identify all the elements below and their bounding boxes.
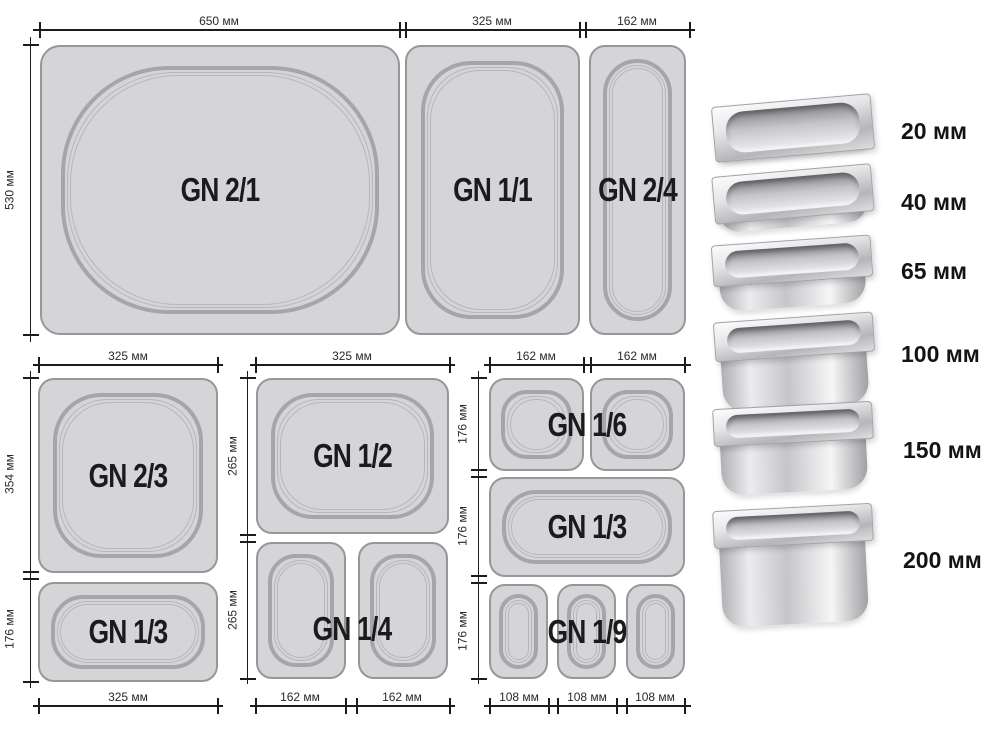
dim-tick — [255, 698, 257, 714]
dim-tick — [217, 698, 219, 714]
dim-tick — [449, 357, 451, 373]
dim-line — [484, 364, 691, 366]
depth-label-40mm: 40 мм — [901, 189, 967, 216]
pan-opening — [726, 319, 861, 353]
dim-tick — [255, 357, 257, 373]
dim-label-108mm: 108 мм — [635, 691, 675, 704]
pan-gn-1-3-right: GN 1/3 — [489, 477, 685, 577]
pan-opening — [724, 101, 861, 154]
pan-gn-2-1: GN 2/1 — [40, 45, 400, 335]
pan-gn-2-3: GN 2/3 — [38, 378, 218, 573]
dim-label-162mm: 162 мм — [382, 691, 422, 704]
pan-well — [51, 595, 205, 669]
pan-opening — [725, 511, 860, 541]
dim-tick — [616, 698, 618, 714]
pan-well — [370, 554, 436, 667]
dim-label-176mm: 176 мм — [4, 609, 17, 649]
dim-label-265mm: 265 мм — [227, 590, 240, 630]
pan-well — [268, 554, 334, 667]
dim-line — [30, 371, 32, 688]
pan-well — [603, 59, 672, 321]
dim-label-162mm: 162 мм — [280, 691, 320, 704]
dim-label-325mm: 325 мм — [332, 350, 372, 363]
dim-label-162mm: 162 мм — [617, 350, 657, 363]
dim-line — [478, 371, 480, 684]
dim-line — [484, 705, 691, 707]
pan-photo-200mm — [713, 507, 875, 624]
dim-tick — [23, 44, 39, 46]
dim-tick — [548, 698, 550, 714]
depth-label-150mm: 150 мм — [903, 437, 982, 464]
pan-well — [499, 594, 538, 669]
dim-tick — [405, 22, 407, 38]
dim-label-176mm: 176 мм — [457, 404, 470, 444]
dim-tick — [557, 698, 559, 714]
dim-label-354mm: 354 мм — [4, 454, 17, 494]
pan-photo-20mm — [713, 100, 875, 154]
gastronorm-sizes-diagram: 650 мм 325 мм 162 мм 530 мм 325 мм 354 м… — [0, 0, 998, 734]
depth-label-200mm: 200 мм — [903, 547, 982, 574]
dim-line — [33, 29, 695, 31]
dim-tick — [626, 698, 628, 714]
dim-tick — [449, 698, 451, 714]
dim-tick — [345, 698, 347, 714]
pan-photo-150mm — [713, 405, 875, 492]
pan-well — [271, 393, 434, 519]
depth-label-100mm: 100 мм — [901, 341, 980, 368]
pan-well — [636, 594, 675, 669]
dim-line — [250, 364, 455, 366]
dim-label-325mm: 325 мм — [108, 691, 148, 704]
dim-tick — [471, 377, 487, 379]
dim-tick — [356, 698, 358, 714]
dim-tick — [38, 698, 40, 714]
pan-gn-1-4-a — [256, 542, 346, 679]
pan-photo-65mm — [712, 240, 874, 307]
pan-gn-1-6-a — [489, 378, 584, 471]
dim-label-325mm: 325 мм — [472, 15, 512, 28]
dim-tick — [684, 698, 686, 714]
dim-line — [247, 371, 249, 684]
pan-gn-1-3-left: GN 1/3 — [38, 582, 218, 682]
pan-opening — [724, 242, 860, 278]
dim-tick — [23, 681, 39, 683]
dim-tick — [471, 469, 487, 471]
pan-well — [53, 393, 203, 558]
dim-tick — [471, 582, 487, 584]
dim-tick — [217, 357, 219, 373]
pan-well — [502, 490, 672, 564]
dim-tick — [23, 571, 39, 573]
dim-label-162mm: 162 мм — [516, 350, 556, 363]
pan-gn-1-4-b — [358, 542, 448, 679]
dim-label-108mm: 108 мм — [499, 691, 539, 704]
pan-gn-1-1: GN 1/1 — [405, 45, 580, 335]
pan-gn-1-2: GN 1/2 — [256, 378, 449, 534]
dim-line — [250, 705, 455, 707]
pan-gn-1-9-c — [626, 584, 685, 679]
dim-line — [33, 705, 223, 707]
dim-label-162mm: 162 мм — [617, 15, 657, 28]
dim-line — [30, 37, 32, 342]
depth-label-65mm: 65 мм — [901, 258, 967, 285]
pan-gn-1-9-b — [557, 584, 616, 679]
dim-tick — [471, 575, 487, 577]
pan-well — [501, 390, 572, 459]
dim-tick — [399, 22, 401, 38]
dim-tick — [579, 22, 581, 38]
dim-tick — [471, 476, 487, 478]
pan-well — [602, 390, 673, 459]
dim-tick — [240, 541, 256, 543]
dim-tick — [583, 357, 585, 373]
pan-opening — [725, 409, 860, 439]
dim-label-325mm: 325 мм — [108, 350, 148, 363]
pan-opening — [725, 171, 861, 216]
dim-tick — [39, 22, 41, 38]
dim-tick — [240, 377, 256, 379]
dim-tick — [23, 334, 39, 336]
dim-tick — [471, 678, 487, 680]
pan-well — [421, 61, 564, 319]
dim-tick — [489, 698, 491, 714]
dim-tick — [23, 578, 39, 580]
dim-tick — [38, 357, 40, 373]
dim-label-108mm: 108 мм — [567, 691, 607, 704]
dim-tick — [23, 377, 39, 379]
pan-well — [567, 594, 606, 669]
dim-tick — [240, 534, 256, 536]
dim-line — [33, 364, 223, 366]
dim-tick — [590, 357, 592, 373]
dim-label-176mm: 176 мм — [457, 506, 470, 546]
pan-photo-40mm — [713, 170, 875, 227]
pan-well — [61, 66, 379, 314]
pan-gn-1-6-b — [590, 378, 685, 471]
pan-photo-100mm — [714, 317, 876, 408]
pan-rim — [711, 93, 875, 163]
pan-gn-2-4: GN 2/4 — [589, 45, 686, 335]
dim-label-530mm: 530 мм — [4, 170, 17, 210]
dim-label-265mm: 265 мм — [227, 436, 240, 476]
dim-tick — [684, 357, 686, 373]
dim-label-650mm: 650 мм — [199, 15, 239, 28]
pan-gn-1-9-a — [489, 584, 548, 679]
depth-label-20mm: 20 мм — [901, 118, 967, 145]
dim-tick — [585, 22, 587, 38]
dim-tick — [689, 22, 691, 38]
dim-tick — [240, 678, 256, 680]
dim-label-176mm: 176 мм — [457, 611, 470, 651]
dim-tick — [489, 357, 491, 373]
